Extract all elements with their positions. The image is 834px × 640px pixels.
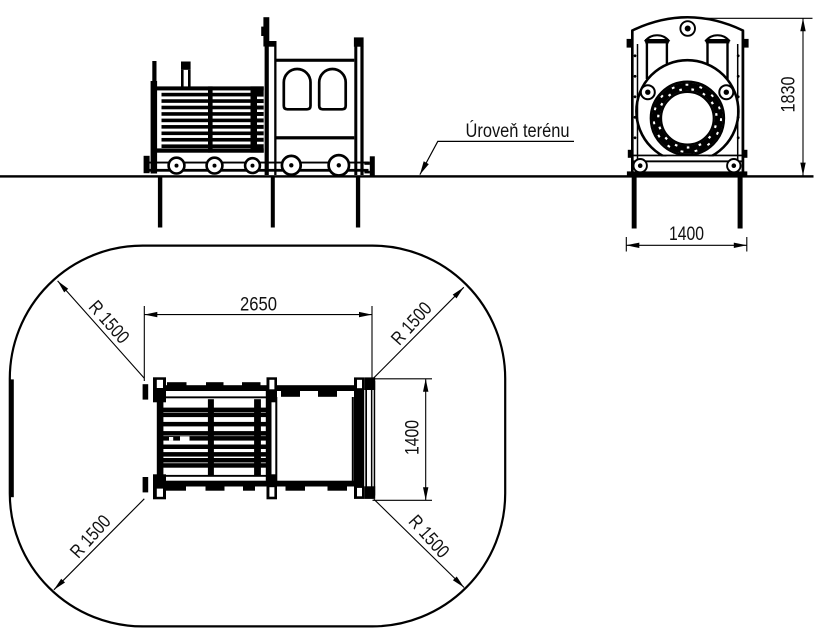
- svg-text:R 1500: R 1500: [84, 297, 133, 348]
- svg-text:1830: 1830: [779, 77, 800, 113]
- svg-text:Úroveň terénu: Úroveň terénu: [466, 119, 570, 142]
- svg-text:R 1500: R 1500: [404, 511, 453, 562]
- svg-text:R 1500: R 1500: [387, 298, 436, 349]
- svg-text:2650: 2650: [240, 295, 277, 316]
- svg-text:1400: 1400: [669, 224, 704, 245]
- svg-text:1400: 1400: [403, 420, 424, 455]
- svg-text:R 1500: R 1500: [66, 511, 115, 562]
